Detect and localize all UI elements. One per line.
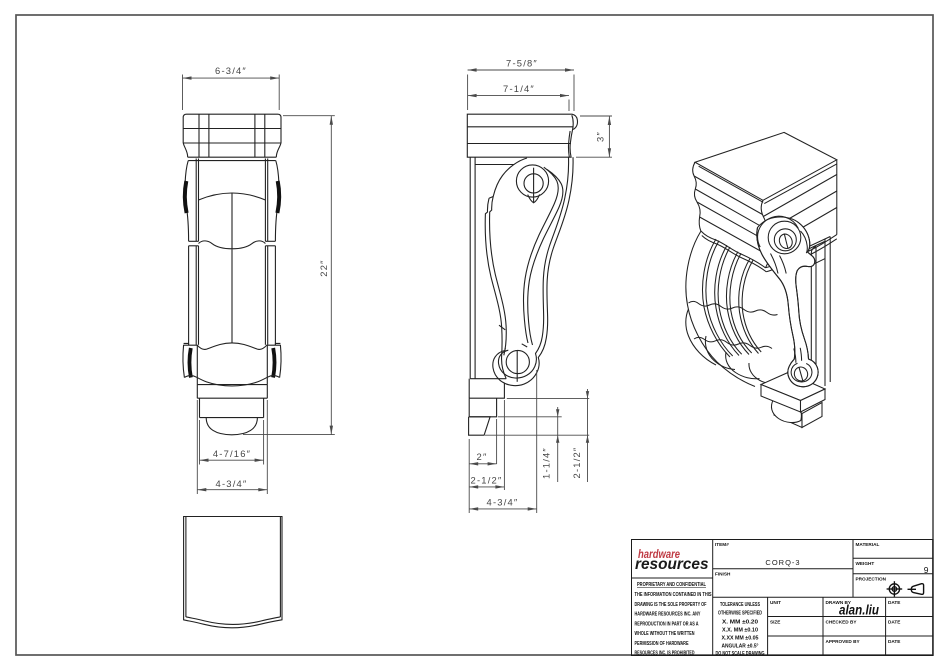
svg-text:CHECKED BY: CHECKED BY	[826, 620, 858, 625]
svg-text:6-3/4″: 6-3/4″	[215, 65, 247, 76]
svg-text:WHOLE WITHOUT THE WRITTEN: WHOLE WITHOUT THE WRITTEN	[635, 631, 695, 637]
svg-text:resources: resources	[635, 556, 709, 573]
svg-text:22″: 22″	[318, 259, 329, 276]
svg-text:X.XX MM ±0.05: X.XX MM ±0.05	[722, 636, 759, 642]
svg-text:2″: 2″	[477, 451, 488, 462]
svg-text:MATERIAL: MATERIAL	[856, 542, 880, 547]
svg-text:UNIT: UNIT	[770, 600, 781, 605]
svg-text:4-3/4″: 4-3/4″	[487, 497, 519, 508]
svg-text:RESOURCES INC. IS PROHIBITED: RESOURCES INC. IS PROHIBITED	[635, 651, 695, 657]
svg-text:2-1/2″: 2-1/2″	[471, 475, 503, 486]
svg-text:SIZE: SIZE	[770, 620, 780, 625]
svg-text:PERMISSION OF HARDWARE: PERMISSION OF HARDWARE	[635, 641, 689, 647]
svg-text:PROPRIETARY AND CONFIDENTIAL: PROPRIETARY AND CONFIDENTIAL	[637, 582, 707, 588]
svg-text:alan.liu: alan.liu	[839, 603, 880, 618]
svg-text:DATE: DATE	[888, 639, 900, 644]
svg-text:7-1/4″: 7-1/4″	[503, 83, 535, 94]
svg-text:CORQ-3: CORQ-3	[765, 558, 800, 567]
svg-text:OTHERWISE SPECIFIED: OTHERWISE SPECIFIED	[718, 611, 762, 617]
svg-text:9: 9	[924, 565, 929, 575]
svg-text:X.X. MM ±0.10: X.X. MM ±0.10	[722, 628, 758, 634]
svg-text:4-3/4″: 4-3/4″	[216, 478, 248, 489]
svg-text:THE INFORMATION CONTAINED IN T: THE INFORMATION CONTAINED IN THIS	[635, 592, 712, 598]
svg-text:WEIGHT: WEIGHT	[856, 561, 875, 566]
svg-text:TOLERANCE UNLESS: TOLERANCE UNLESS	[720, 602, 760, 608]
svg-text:ITEM#: ITEM#	[715, 542, 729, 547]
svg-text:HARDWARE RESOURCES INC. ANY: HARDWARE RESOURCES INC. ANY	[635, 612, 701, 618]
svg-text:3″: 3″	[595, 131, 606, 142]
svg-text:PROJECTION: PROJECTION	[856, 577, 887, 582]
svg-text:2-1/2″: 2-1/2″	[571, 447, 582, 479]
svg-text:4-7/16″: 4-7/16″	[213, 448, 251, 459]
svg-text:DRAWING IS THE SOLE PROPERTY O: DRAWING IS THE SOLE PROPERTY OF	[635, 602, 707, 608]
svg-text:7-5/8″: 7-5/8″	[506, 58, 538, 69]
svg-text:DATE: DATE	[888, 600, 900, 605]
svg-text:1-1/4″: 1-1/4″	[541, 447, 552, 479]
svg-text:ANGULAR ±0.5°: ANGULAR ±0.5°	[722, 644, 759, 650]
svg-text:X. MM ±0.20: X. MM ±0.20	[722, 620, 758, 626]
svg-text:APPROVED BY: APPROVED BY	[826, 639, 861, 644]
svg-text:FINISH: FINISH	[715, 572, 731, 577]
svg-text:DO NOT SCALE DRAWING: DO NOT SCALE DRAWING	[716, 651, 765, 657]
svg-text:DATE: DATE	[888, 620, 900, 625]
svg-text:REPRODUCTION IN PART OR AS A: REPRODUCTION IN PART OR AS A	[635, 621, 699, 627]
